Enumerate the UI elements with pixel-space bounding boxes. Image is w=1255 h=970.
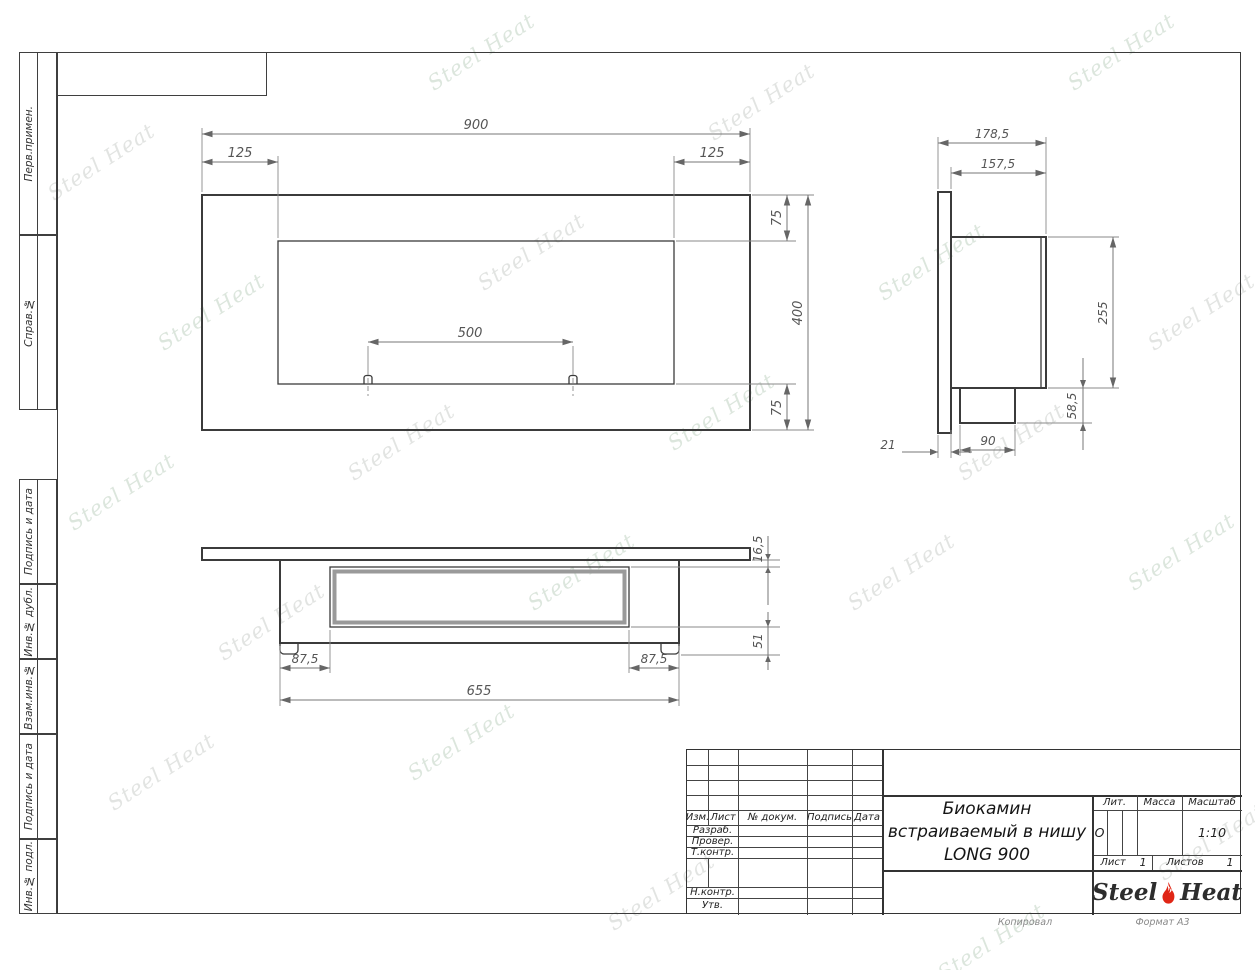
front-view: 900 125 125 75 400 75 [202,118,814,430]
dim-text-400: 400 [791,301,806,326]
steelheat-logo: Steel Heat [1092,870,1242,915]
tb-col-list: Лист [708,810,738,825]
dim-side-depth-total: 178,5 [938,127,1046,143]
tb-row-prover: Провер. [687,836,738,847]
side-body [951,237,1046,388]
tb-scale-label: Масштаб [1182,795,1242,810]
dim-side-height-body: 255 [1096,237,1113,388]
dim-front-width: 900 [202,118,750,134]
dim-text-178-5: 178,5 [975,127,1009,141]
flame-icon [1159,877,1178,909]
dim-front-margin-top: 75 [770,195,787,241]
side-burner-tray [960,388,1015,423]
dim-text-90: 90 [980,434,996,448]
tb-massa-label: Масса [1137,795,1182,810]
title-line-3: LONG 900 [944,844,1030,867]
tb-sheets-label: Листов [1152,855,1218,870]
document-title: Биокамин встраиваемый в нишу LONG 900 [882,795,1092,870]
burner-clip-left [364,370,372,396]
title-line-2: встраиваемый в нишу [888,821,1086,844]
footer-copied: Копировал [980,917,1070,928]
dim-text-87-5-right: 87,5 [641,652,668,666]
title-block: Изм. Лист № докум. Подпись Дата Разраб. … [686,749,1241,914]
dim-text-87-5-left: 87,5 [292,652,319,666]
tb-col-izm: Изм. [687,810,708,825]
dim-bottom-flange-gap: 16,5 [751,536,771,605]
title-line-1: Биокамин [943,798,1032,821]
front-outer-body [202,195,750,430]
dim-text-900: 900 [464,118,489,133]
burner-clip-right [569,370,577,396]
tb-sheets-value: 1 [1218,855,1242,870]
dim-text-75-top: 75 [770,210,785,227]
tb-sheet-label: Лист [1092,855,1134,870]
dim-text-75-bottom: 75 [770,400,785,417]
drawing-sheet: Steel Heat Steel Heat Steel Heat Steel H… [0,0,1255,970]
dim-side-flange-thickness: 21 [880,438,972,455]
side-flange [938,192,951,433]
tb-sheet-value: 1 [1134,855,1152,870]
dim-front-flange-left: 125 [202,146,278,162]
dim-text-655: 655 [467,684,492,699]
tb-scale-value: 1:10 [1182,810,1242,855]
tb-lit-label: Лит. [1092,795,1137,810]
dim-text-125-right: 125 [700,146,725,161]
dim-side-tray-depth: 90 [960,434,1015,450]
dim-text-16-5: 16,5 [751,536,765,563]
dim-text-157-5: 157,5 [981,157,1015,171]
dim-bottom-tray-drop: 51 [751,612,771,670]
dim-front-margin-bottom: 75 [770,384,787,430]
dim-text-58-5: 58,5 [1065,393,1079,420]
tb-row-utv: Утв. [687,898,738,913]
tb-col-doc: № докум. [738,810,807,825]
logo-heat-text: Heat [1180,879,1242,906]
logo-steel-text: Steel [1092,879,1157,906]
dim-side-tray-height: 58,5 [1065,358,1086,450]
tb-row-tkontr: Т.контр. [687,847,738,858]
bottom-view: 16,5 51 87,5 87,5 655 [202,536,780,706]
dim-text-255: 255 [1096,302,1110,325]
dim-front-height: 400 [791,195,808,430]
front-opening [278,241,674,384]
dim-text-51: 51 [751,633,765,648]
tb-col-podpis: Подпись [807,810,852,825]
side-view: 178,5 157,5 255 58,5 90 [880,127,1119,458]
dim-text-500: 500 [458,326,483,341]
bottom-opening [330,567,629,627]
dim-text-125-left: 125 [228,146,253,161]
tb-col-data: Дата [852,810,882,825]
tb-lit-value: О [1092,810,1107,855]
bottom-flange-plate [202,548,750,560]
tb-row-razrab: Разраб. [687,825,738,836]
dim-side-depth-body: 157,5 [951,157,1046,173]
tb-row-nkontr: Н.контр. [687,887,738,898]
bottom-opening-shade [335,572,625,623]
dim-front-burner-spacing: 500 [368,326,573,370]
dim-front-flange-right: 125 [674,146,750,162]
footer-format: Формат А3 [1115,917,1210,928]
dim-text-21: 21 [880,438,895,452]
dim-bottom-body-width: 655 [280,684,679,700]
